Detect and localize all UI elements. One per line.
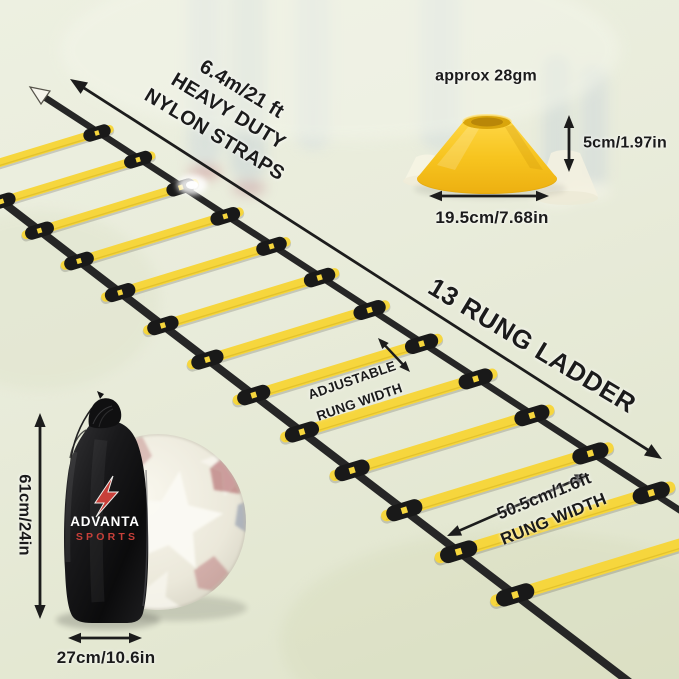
clip-slot	[401, 509, 407, 511]
bag-height-label: 61cm/24in	[13, 474, 34, 556]
arrow-head	[34, 413, 45, 427]
cone-weight-label: approx 28gm	[435, 67, 537, 88]
arrow-head	[644, 444, 662, 459]
clip-slot	[299, 431, 304, 433]
clip-slot	[95, 132, 99, 133]
clip-slot	[317, 277, 322, 278]
bag-height-arrow	[34, 413, 45, 619]
carry-bag: ADVANTA SPORTS	[56, 391, 160, 630]
clip-slot	[367, 309, 372, 311]
clip-slot	[349, 469, 354, 471]
clip-slot	[136, 159, 140, 160]
clip-slot	[456, 551, 462, 553]
clip-slot	[37, 230, 41, 231]
clip-slot	[269, 246, 274, 247]
clip-slot	[251, 394, 256, 396]
clip-slot	[118, 292, 123, 293]
lens-flare	[177, 175, 207, 195]
clip-slot	[648, 492, 654, 494]
cone-diameter-label: 19.5cm/7.68in	[435, 207, 548, 229]
clip-slot	[512, 594, 518, 596]
clip-slot	[77, 260, 81, 261]
clip-slot	[473, 378, 478, 380]
bag-width-arrow	[68, 633, 142, 643]
scene-canvas: ADVANTA SPORTS	[0, 0, 679, 679]
brand-name: ADVANTA	[70, 514, 140, 529]
clip-slot	[419, 343, 424, 345]
clip-slot	[205, 359, 210, 361]
clip-slot	[0, 201, 4, 202]
cone-height-label: 5cm/1.97in	[583, 134, 667, 155]
arrow-head	[129, 633, 142, 643]
arrow-head	[447, 525, 462, 536]
arrow-head	[34, 605, 45, 619]
clip-slot	[161, 325, 166, 326]
arrow-head	[68, 633, 81, 643]
clip-slot	[529, 415, 534, 417]
clip-slot	[588, 453, 594, 455]
brand-subtitle: SPORTS	[76, 531, 138, 543]
bag-width-label: 27cm/10.6in	[57, 647, 156, 669]
product-infographic: ADVANTA SPORTS 6.4m/21 ft HEAVY DUTY NYL…	[0, 0, 679, 679]
clip-slot	[223, 216, 227, 217]
